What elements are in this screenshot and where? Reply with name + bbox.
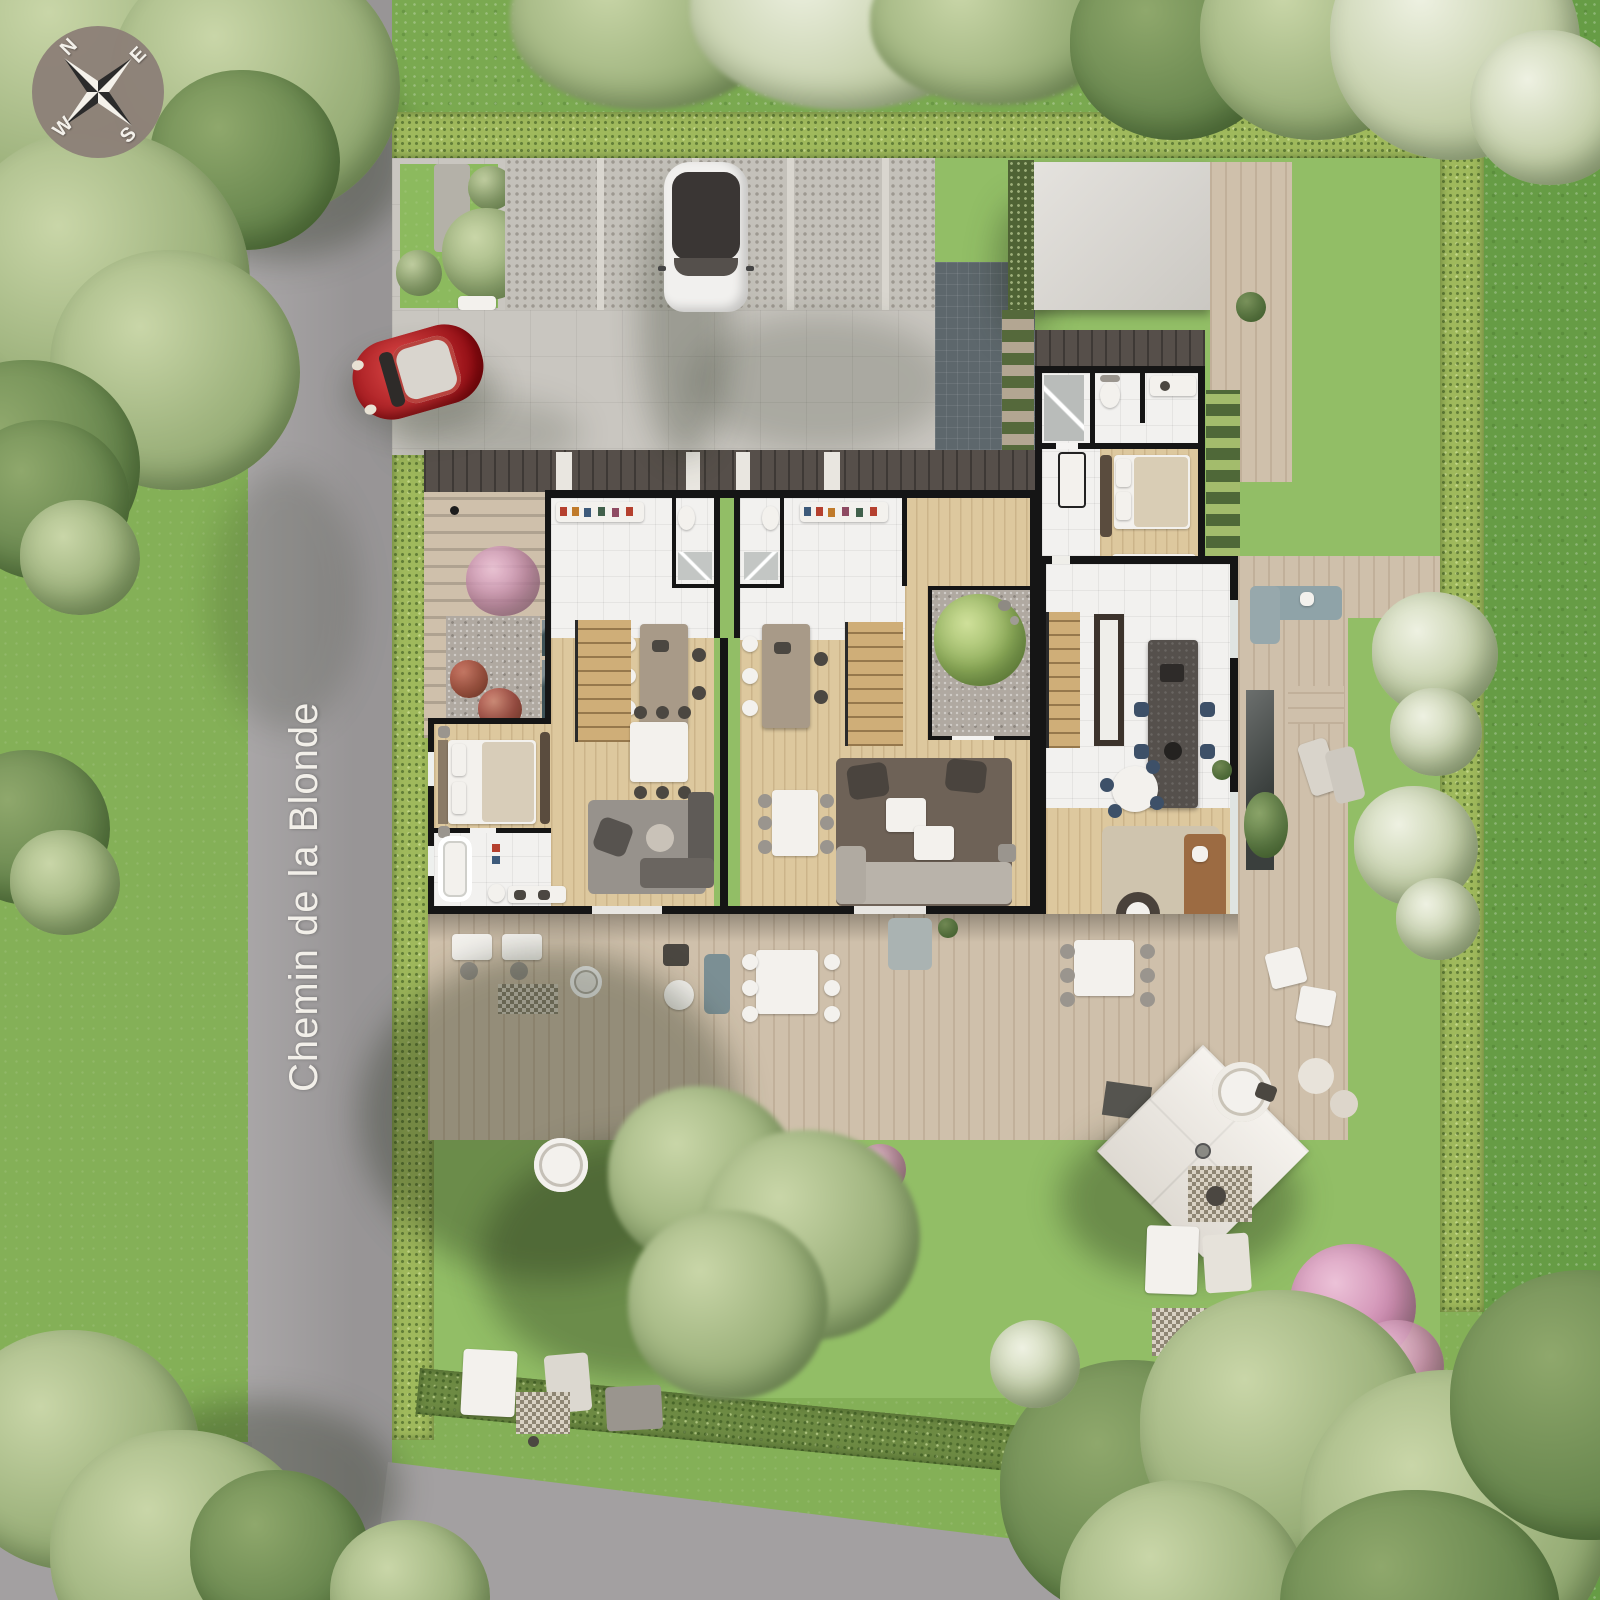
unitB-kitchen-items bbox=[804, 507, 811, 516]
planter-plant bbox=[1244, 792, 1288, 858]
outdoor-dining-table bbox=[1074, 940, 1134, 996]
unitB-stairs bbox=[845, 622, 903, 746]
unitB-sofa-return bbox=[836, 846, 866, 904]
annex-pillow bbox=[1116, 459, 1131, 487]
stool bbox=[692, 648, 706, 662]
entry-door-slot bbox=[736, 452, 750, 492]
party-wall-BC bbox=[1030, 490, 1038, 906]
unitB-dining-table bbox=[772, 790, 818, 856]
outdoor-chair bbox=[824, 980, 840, 996]
outdoor-dining-table bbox=[756, 950, 818, 1014]
white-car-windshield bbox=[674, 258, 738, 276]
outdoor-armchair bbox=[1295, 985, 1337, 1027]
blue-chair bbox=[1108, 804, 1122, 818]
annex-shower bbox=[1044, 375, 1084, 441]
stool bbox=[742, 668, 758, 684]
side-table bbox=[998, 844, 1016, 862]
white-car-mirror bbox=[658, 266, 666, 271]
outdoor-table-small bbox=[663, 944, 689, 966]
pillow bbox=[452, 744, 466, 776]
outdoor-desk bbox=[452, 934, 492, 960]
nightstand bbox=[438, 726, 450, 738]
bathB-shower bbox=[744, 552, 778, 580]
side-table bbox=[1330, 1090, 1358, 1118]
terrace-plant bbox=[938, 918, 958, 938]
bathB-toilet bbox=[762, 506, 779, 530]
flowering-tree bbox=[990, 1320, 1080, 1408]
atrium-wall bbox=[928, 586, 932, 740]
tree bbox=[20, 500, 140, 615]
parasol-pole bbox=[1197, 1145, 1209, 1157]
unitA-dining-table bbox=[630, 722, 688, 782]
garden-slab bbox=[605, 1385, 663, 1432]
dining-chair bbox=[634, 706, 647, 719]
atrium-tree bbox=[934, 594, 1026, 686]
bathA-wall bbox=[672, 498, 676, 588]
unitA-bed-headboard bbox=[438, 740, 448, 824]
party-wall-AB bbox=[714, 490, 720, 638]
dining-chair bbox=[758, 816, 772, 830]
red-plant bbox=[450, 660, 488, 698]
unitC-window-east bbox=[1230, 600, 1238, 658]
unitB-island bbox=[762, 624, 810, 728]
parking-divider bbox=[787, 158, 794, 310]
street-name-label: Chemin de la Blonde bbox=[282, 702, 327, 1092]
unitC-door-gap bbox=[1052, 556, 1070, 564]
garden-pot bbox=[528, 1436, 539, 1447]
unitA-kitchen-items bbox=[560, 507, 567, 516]
blue-chair bbox=[1146, 760, 1160, 774]
sun-lounger bbox=[1145, 1225, 1199, 1295]
wall-south bbox=[428, 906, 1038, 914]
outdoor-chair bbox=[824, 1006, 840, 1022]
garage-roof bbox=[1032, 162, 1210, 310]
sink bbox=[514, 890, 526, 900]
dining-chair bbox=[820, 840, 834, 854]
party-wall-AB bbox=[734, 490, 740, 638]
annex-closet bbox=[1058, 452, 1086, 508]
road-tree-shadow-mid bbox=[210, 470, 360, 730]
bathB-wall bbox=[740, 584, 784, 588]
annex-duvet bbox=[1134, 457, 1188, 527]
garden-mat bbox=[516, 1392, 570, 1434]
annex-toilet-tank bbox=[1100, 375, 1120, 382]
houseplant bbox=[1212, 760, 1232, 780]
stool bbox=[814, 652, 828, 666]
annex-pillow bbox=[1116, 492, 1131, 520]
deck-shrub bbox=[1236, 292, 1266, 322]
white-car-mirror bbox=[746, 266, 754, 271]
deck-light bbox=[450, 506, 459, 515]
blue-chair bbox=[1100, 778, 1114, 792]
ornamental-grasses bbox=[1008, 160, 1034, 310]
party-wall-AB-lower bbox=[720, 638, 728, 906]
unitB-coffee-table bbox=[914, 826, 954, 860]
bathA-shower bbox=[678, 552, 712, 580]
slider-gap bbox=[854, 906, 926, 914]
stool bbox=[814, 690, 828, 704]
annex-toilet bbox=[1100, 382, 1120, 408]
stool bbox=[742, 636, 758, 652]
dining-chair bbox=[758, 794, 772, 808]
outdoor-chair bbox=[1060, 968, 1075, 983]
unitC-cabinet-interior bbox=[1100, 620, 1118, 740]
outdoor-chair bbox=[1060, 944, 1075, 959]
slider-gap bbox=[592, 906, 662, 914]
outdoor-chair bbox=[1060, 992, 1075, 1007]
outdoor-chair bbox=[824, 954, 840, 970]
entry-door-slot bbox=[824, 452, 840, 492]
bathB-wall bbox=[780, 498, 784, 588]
window-gap bbox=[428, 846, 434, 876]
annex-wardrobe bbox=[1100, 455, 1112, 537]
pillow bbox=[452, 782, 466, 814]
terrace-steps bbox=[1288, 686, 1344, 724]
wall-wing-north bbox=[428, 718, 551, 724]
entry-door-slot bbox=[556, 452, 572, 492]
north-roof-band bbox=[424, 450, 1036, 492]
annex-roof-band bbox=[1035, 330, 1205, 366]
unitC-stairs bbox=[1046, 612, 1080, 748]
parking-divider bbox=[882, 158, 889, 310]
dining-chair bbox=[820, 794, 834, 808]
garden-lounger bbox=[460, 1349, 517, 1418]
outdoor-chair bbox=[742, 1006, 758, 1022]
outdoor-bench bbox=[704, 954, 730, 1014]
atrium-wall bbox=[928, 586, 1032, 590]
unitC-cooktop bbox=[1164, 742, 1182, 760]
dining-chair bbox=[656, 786, 669, 799]
white-car-roof bbox=[672, 172, 740, 260]
wall-wing-west bbox=[428, 718, 434, 914]
unitB-kitchen-counter bbox=[800, 502, 888, 522]
wall-unitA-west bbox=[545, 492, 551, 724]
white-car bbox=[664, 162, 748, 312]
sofa-pillow bbox=[1192, 846, 1208, 862]
stepping-stones-east bbox=[1206, 390, 1240, 558]
side-table bbox=[1298, 1058, 1334, 1094]
annex-door-gap bbox=[1056, 443, 1078, 449]
annex-bath-wall bbox=[1090, 373, 1095, 443]
outdoor-chair bbox=[1140, 968, 1155, 983]
garden-bed-paver bbox=[458, 296, 496, 310]
garden-table bbox=[534, 1138, 588, 1192]
dining-chair bbox=[820, 816, 834, 830]
atrium-window bbox=[952, 736, 994, 740]
towels bbox=[492, 844, 500, 852]
blue-chair bbox=[1200, 702, 1215, 717]
tree bbox=[10, 830, 120, 935]
unitB-armchair bbox=[944, 758, 987, 794]
annex-vanity bbox=[1150, 376, 1196, 396]
stool bbox=[692, 686, 706, 700]
dining-chair bbox=[678, 706, 691, 719]
blossom-shrub bbox=[466, 546, 540, 616]
dining-chair bbox=[758, 840, 772, 854]
lounge-chair bbox=[1250, 586, 1280, 644]
compass-rose: N E S W bbox=[28, 22, 168, 162]
garden-tree bbox=[628, 1210, 828, 1400]
blue-chair bbox=[1200, 744, 1215, 759]
unitB-sink bbox=[774, 642, 791, 654]
outdoor-chair bbox=[1140, 944, 1155, 959]
sink bbox=[538, 890, 550, 900]
window-gap bbox=[428, 752, 434, 786]
parking-divider bbox=[597, 158, 604, 310]
unitA-sofa-chaise bbox=[640, 858, 714, 888]
toilet bbox=[488, 884, 505, 902]
bathA-toilet bbox=[678, 506, 695, 530]
unitB-armchair bbox=[846, 761, 890, 800]
outdoor-chair bbox=[1140, 992, 1155, 1007]
outdoor-chair bbox=[742, 954, 758, 970]
blue-chair bbox=[1150, 796, 1164, 810]
wall-B-bedroom bbox=[902, 498, 907, 586]
stool bbox=[742, 700, 758, 716]
flowering-tree bbox=[1396, 878, 1480, 960]
deck-eave-shadow bbox=[428, 914, 1238, 942]
unitA-duvet bbox=[482, 742, 534, 822]
atrium-boulder bbox=[1010, 616, 1019, 625]
unitA-sink bbox=[652, 640, 669, 652]
unitC-sink bbox=[1160, 664, 1184, 682]
blue-chair bbox=[1134, 702, 1149, 717]
fire-bowl bbox=[1206, 1186, 1226, 1206]
bathtub bbox=[438, 836, 472, 902]
unitA-stairs bbox=[575, 620, 631, 742]
annex-sink bbox=[1160, 381, 1170, 391]
dining-chair bbox=[656, 706, 669, 719]
bathA-wall bbox=[672, 584, 718, 588]
unitA-coffee-table bbox=[646, 824, 674, 852]
flowering-tree bbox=[1390, 688, 1482, 776]
compass-graphic bbox=[28, 22, 168, 162]
annex-bath-wall bbox=[1140, 373, 1145, 423]
atrium-boulder bbox=[998, 600, 1011, 611]
unitA-kitchen-counter bbox=[556, 502, 644, 522]
wall-north bbox=[545, 490, 1038, 498]
clipped-shrub bbox=[396, 250, 442, 296]
unitA-wardrobe bbox=[540, 732, 550, 824]
outdoor-chair bbox=[742, 980, 758, 996]
blue-chair bbox=[1134, 744, 1149, 759]
sun-lounger bbox=[1202, 1232, 1252, 1293]
lounge-pillow bbox=[1300, 592, 1314, 606]
dining-chair bbox=[634, 786, 647, 799]
site-plan-rendering: Chemin de la Blonde bbox=[0, 0, 1600, 1600]
outdoor-sofa bbox=[888, 918, 932, 970]
door-gap bbox=[470, 828, 496, 833]
